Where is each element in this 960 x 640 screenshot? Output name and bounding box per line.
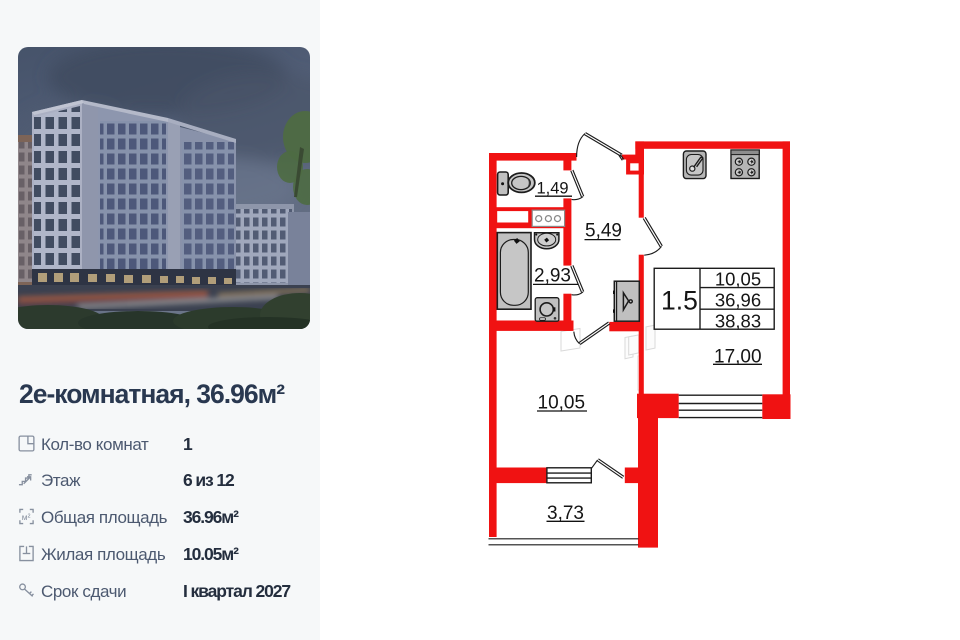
- svg-text:2,93: 2,93: [534, 266, 571, 287]
- svg-text:38,83: 38,83: [715, 311, 761, 332]
- svg-text:5,49: 5,49: [585, 221, 622, 242]
- svg-text:10,05: 10,05: [715, 269, 761, 290]
- svg-text:1,49: 1,49: [537, 180, 569, 198]
- svg-text:1.5: 1.5: [661, 286, 698, 316]
- svg-text:м²: м²: [22, 512, 31, 522]
- svg-text:36,96: 36,96: [715, 290, 761, 311]
